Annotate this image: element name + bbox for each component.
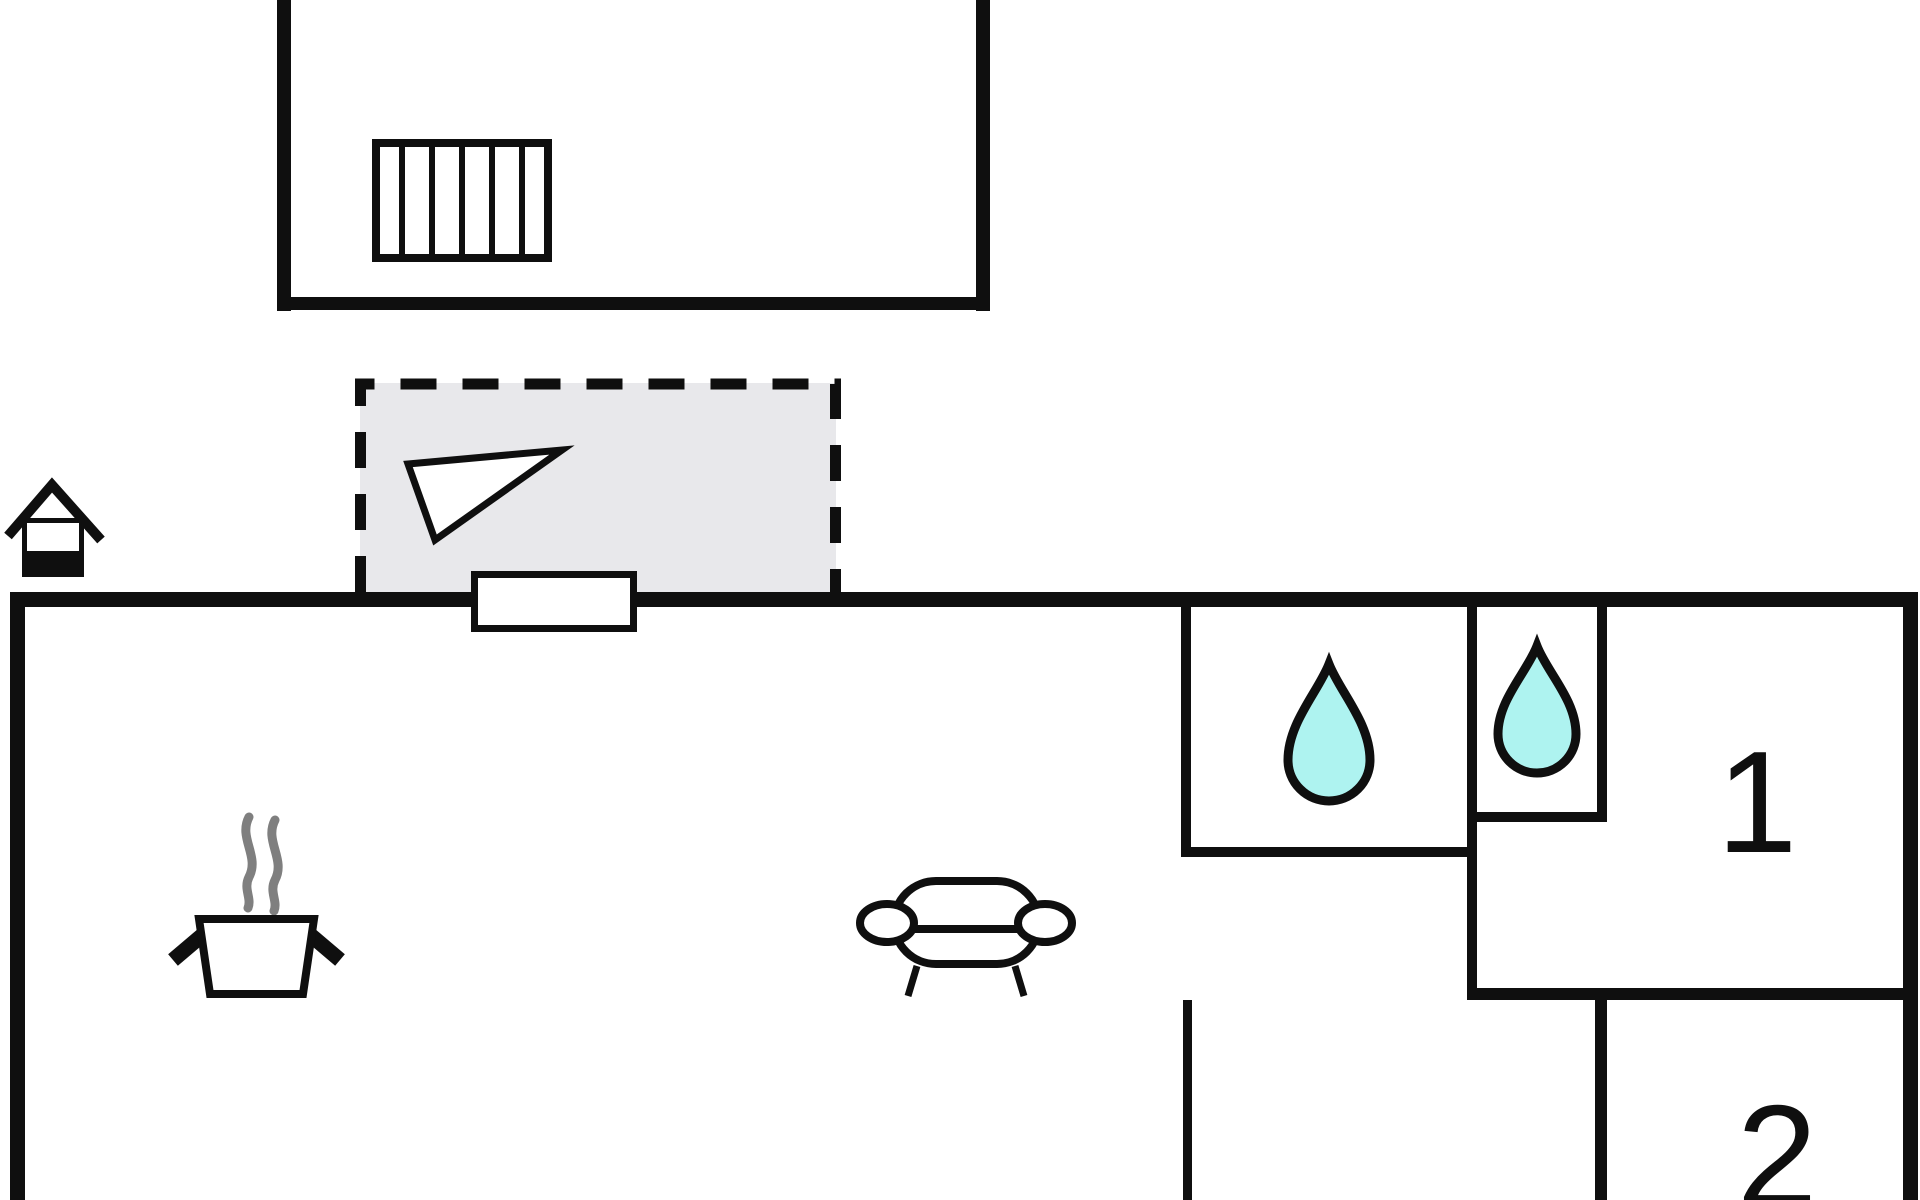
terrace — [360, 383, 836, 593]
annex-bottom-wall — [277, 297, 990, 310]
steam-line — [272, 820, 278, 911]
house-icon — [8, 485, 101, 577]
pot-body — [199, 919, 314, 994]
top-wall-right-segment — [637, 592, 1918, 607]
sofa-icon — [860, 881, 1072, 996]
bedroom2-left-wall — [1595, 1000, 1607, 1200]
bathroom2-bottom-wall — [1467, 812, 1607, 822]
annex-right-wall — [976, 0, 990, 311]
steam-line — [246, 817, 252, 908]
house-base — [22, 551, 84, 577]
annex-room — [277, 0, 990, 311]
door-leaf — [478, 578, 630, 625]
water-drop-icon — [1288, 664, 1370, 801]
bathroom1-left-wall — [1181, 607, 1191, 857]
stairs-icon — [376, 143, 548, 258]
bedroom1-bottom-wall — [1467, 988, 1918, 1000]
annex-left-wall — [277, 0, 291, 311]
hall-partition-wall — [1183, 1000, 1192, 1200]
water-drop-icon — [1498, 646, 1576, 773]
entrance-door — [471, 571, 637, 632]
sofa-right-leg — [1015, 966, 1024, 996]
top-wall-left-segment — [10, 592, 471, 607]
floor-plan: 1 2 — [0, 0, 1920, 1200]
bedroom-1-label: 1 — [1717, 721, 1798, 883]
left-outer-wall — [10, 592, 25, 1200]
cooking-pot-icon — [173, 817, 340, 994]
sofa-right-armrest — [1018, 904, 1072, 942]
sofa-left-leg — [908, 966, 917, 996]
bathroom1-bottom-wall — [1181, 847, 1477, 857]
bedroom-2-label: 2 — [1737, 1075, 1818, 1200]
bathroom2-right-wall — [1597, 607, 1607, 822]
floor-plan-canvas: 1 2 — [0, 0, 1920, 1200]
sofa-left-armrest — [860, 904, 914, 942]
right-outer-wall — [1903, 592, 1918, 1200]
bathroom1-right-wall — [1467, 607, 1477, 1000]
